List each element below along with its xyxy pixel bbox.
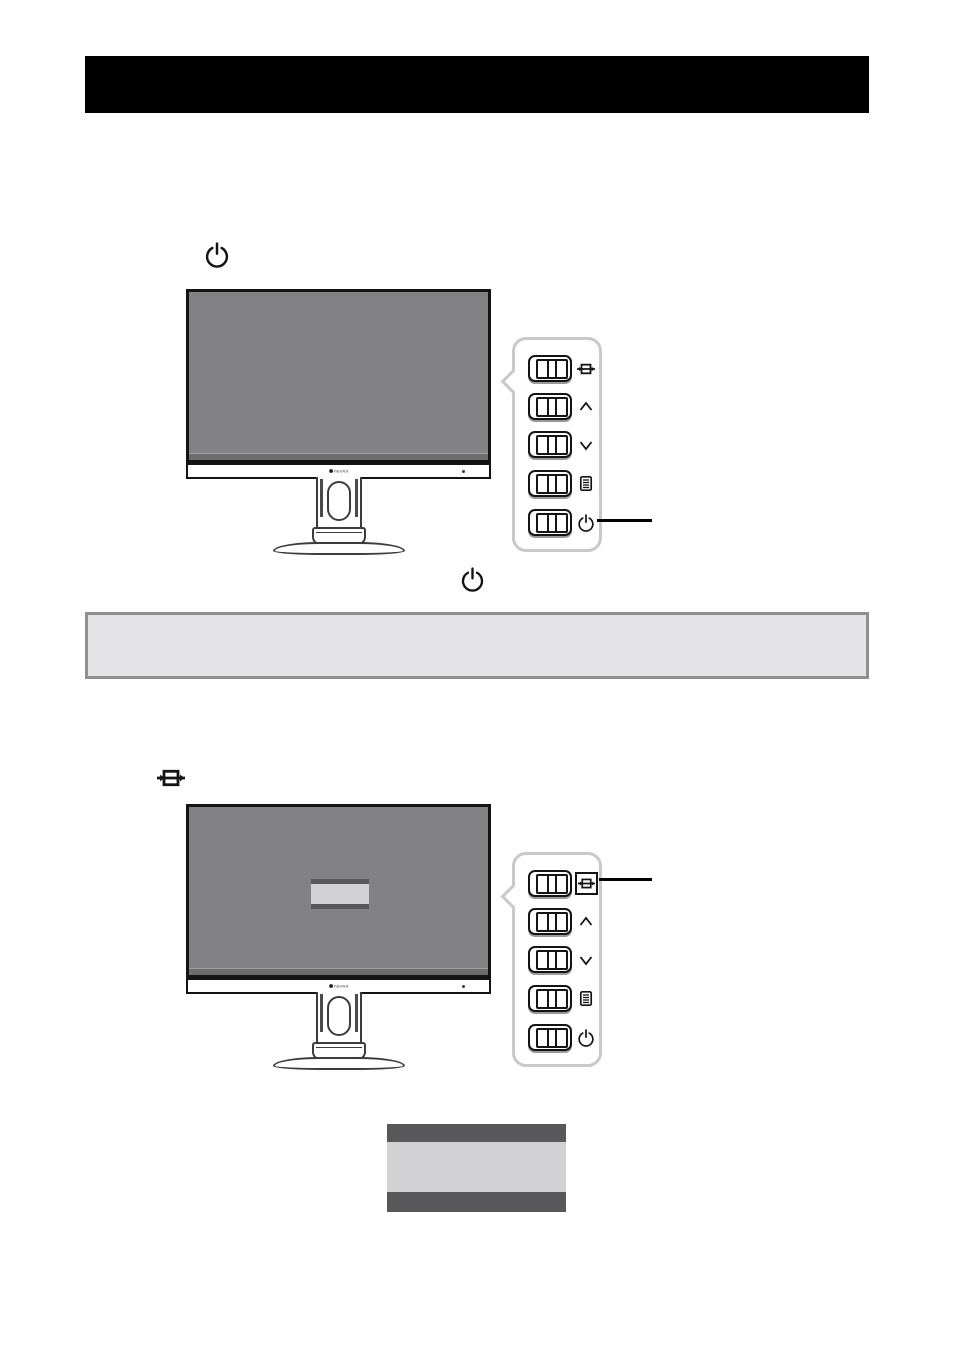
key-face <box>536 513 568 533</box>
key-face <box>536 397 568 417</box>
stand-neck <box>316 477 362 529</box>
menu-button-key <box>528 470 572 497</box>
key-face <box>536 359 568 379</box>
source-callout-line <box>599 878 652 881</box>
osd-body <box>387 1142 566 1192</box>
key-face <box>536 435 568 455</box>
key-face <box>536 989 568 1009</box>
power-led <box>462 470 465 473</box>
down-button-key <box>528 431 572 458</box>
osd-footer-bar <box>387 1192 566 1212</box>
osd-menu-graphic <box>387 1124 566 1212</box>
key-face <box>536 1028 568 1048</box>
menu-icon <box>577 990 595 1008</box>
screen-bottom-shade <box>189 968 488 975</box>
chevron-down-icon <box>577 951 595 969</box>
control-panel-callout <box>512 337 602 552</box>
power-callout-line <box>597 519 652 522</box>
osd-overlay <box>311 879 369 909</box>
up-button-key <box>528 393 572 420</box>
chevron-up-icon <box>577 398 595 416</box>
screen-bottom-shade <box>189 453 488 460</box>
note-box <box>85 612 869 679</box>
stand-base <box>273 542 405 555</box>
source-icon <box>575 872 598 895</box>
stand-cable-hole <box>327 481 351 521</box>
power-led <box>462 985 465 988</box>
source-button-key <box>528 870 572 897</box>
brand-logo-mark <box>329 469 333 473</box>
menu-button-key <box>528 985 572 1012</box>
brand-logo-text: neovo <box>334 984 349 989</box>
up-button-key <box>528 908 572 935</box>
key-face <box>536 950 568 970</box>
monitor-screen <box>186 289 491 463</box>
control-panel-callout <box>512 852 602 1067</box>
power-button-key <box>528 509 572 536</box>
key-face <box>536 874 568 894</box>
down-button-key <box>528 946 572 973</box>
page-header-bar <box>85 56 869 113</box>
osd-body <box>311 884 369 904</box>
brand-logo: neovo <box>329 469 349 474</box>
osd-footer-bar <box>311 904 369 909</box>
source-button-key <box>528 355 572 382</box>
power-button-key <box>528 1024 572 1051</box>
monitor-screen <box>186 804 491 978</box>
key-face <box>536 474 568 494</box>
brand-logo-mark <box>329 984 333 988</box>
power-icon <box>577 1029 595 1047</box>
key-face <box>536 912 568 932</box>
power-icon <box>204 242 230 268</box>
stand-cable-hole <box>327 996 351 1036</box>
power-icon <box>460 567 485 592</box>
source-icon <box>577 360 595 378</box>
osd-title-bar <box>387 1124 566 1142</box>
power-icon <box>577 514 595 532</box>
stand-neck <box>316 992 362 1044</box>
chevron-down-icon <box>577 436 595 454</box>
brand-logo-text: neovo <box>334 469 349 474</box>
menu-icon <box>577 475 595 493</box>
chevron-up-icon <box>577 913 595 931</box>
stand-base <box>273 1057 405 1070</box>
brand-logo: neovo <box>329 984 349 989</box>
source-icon <box>157 767 185 789</box>
